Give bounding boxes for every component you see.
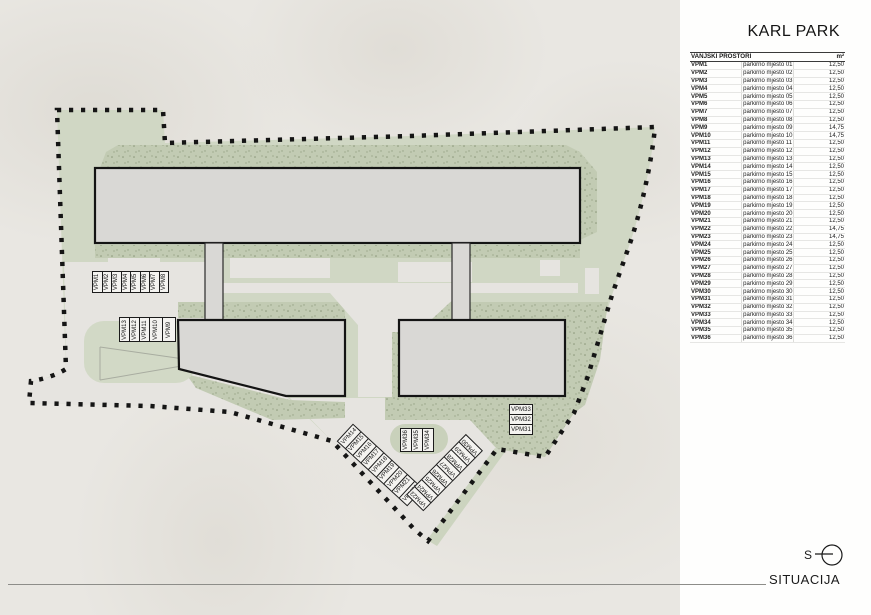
- parking-description: parkirno mjesto 13: [742, 155, 794, 163]
- parking-code: VPM20: [690, 210, 742, 218]
- parking-description: parkirno mjesto 27: [742, 264, 794, 272]
- parking-description: parkirno mjesto 01: [742, 62, 794, 70]
- parking-description: parkirno mjesto 26: [742, 256, 794, 264]
- green-band-mid: [178, 302, 345, 318]
- courtyard-path-horizontal: [97, 283, 578, 293]
- terrace-2: [230, 258, 330, 278]
- north-symbol-icon: S: [802, 542, 850, 570]
- site-plan: VPM1VPM2VPM3VPM4VPM5VPM6VPM7VPM8 VPM13VP…: [0, 0, 680, 615]
- parking-code: VPM24: [690, 241, 742, 249]
- parking-code: VPM18: [690, 194, 742, 202]
- parking-stall-label: VPM34: [422, 428, 434, 452]
- table-row: VPM36 parkirno mjesto 36 12,50: [690, 334, 845, 342]
- terrace-5: [585, 268, 599, 294]
- table-row: VPM19 parkirno mjesto 19 12,50: [690, 202, 845, 210]
- parking-code: VPM9: [690, 124, 742, 132]
- parking-description: parkirno mjesto 07: [742, 108, 794, 116]
- parking-description: parkirno mjesto 20: [742, 210, 794, 218]
- parking-code: VPM12: [690, 147, 742, 155]
- parking-row-vpm9-13: VPM13VPM12VPM11VPM10VPM9: [119, 317, 176, 342]
- parking-description: parkirno mjesto 34: [742, 319, 794, 327]
- building-connector-east: [452, 243, 470, 321]
- parking-description: parkirno mjesto 32: [742, 303, 794, 311]
- parking-description: parkirno mjesto 22 - invalidsko: [742, 225, 794, 233]
- parking-description: parkirno mjesto 28: [742, 272, 794, 280]
- parking-description: parkirno mjesto 16: [742, 178, 794, 186]
- parking-stall-label: VPM9: [162, 317, 176, 342]
- table-row: VPM9 parkirno mjesto 09 - invalidsko 14,…: [690, 124, 845, 132]
- parking-description: parkirno mjesto 10 - invalidsko: [742, 132, 794, 140]
- project-title: KARL PARK: [680, 24, 840, 40]
- parking-code: VPM1: [690, 62, 742, 70]
- parking-area: 12,50: [793, 303, 845, 311]
- table-row: VPM22 parkirno mjesto 22 - invalidsko 14…: [690, 225, 845, 233]
- caption-rule: [8, 584, 766, 585]
- parking-description: parkirno mjesto 33: [742, 311, 794, 319]
- parking-code: VPM4: [690, 85, 742, 93]
- parking-code: VPM11: [690, 139, 742, 147]
- table-row: VPM21 parkirno mjesto 21 12,50: [690, 217, 845, 225]
- table-row: VPM18 parkirno mjesto 18 12,50: [690, 194, 845, 202]
- parking-code: VPM31: [690, 295, 742, 303]
- table-row: VPM24 parkirno mjesto 24 12,50: [690, 241, 845, 249]
- table-header-row: VANJSKI PROSTORI m²: [690, 53, 845, 62]
- parking-area: 12,50: [793, 264, 845, 272]
- parking-description: parkirno mjesto 29: [742, 280, 794, 288]
- parking-area: 12,50: [793, 272, 845, 280]
- table-row: VPM1 parkirno mjesto 01 12,50: [690, 62, 845, 70]
- table-row: VPM15 parkirno mjesto 15 12,50: [690, 171, 845, 179]
- parking-stall-label: VPM10: [149, 317, 163, 342]
- parking-area: 12,50: [793, 202, 845, 210]
- table-row: VPM3 parkirno mjesto 03 12,50: [690, 77, 845, 85]
- table-row: VPM14 parkirno mjesto 14 12,50: [690, 163, 845, 171]
- parking-description: parkirno mjesto 19: [742, 202, 794, 210]
- parking-stall-label: VPM8: [159, 271, 170, 293]
- parking-code: VPM26: [690, 256, 742, 264]
- table-header-name: VANJSKI PROSTORI: [690, 53, 793, 62]
- parking-description: parkirno mjesto 17: [742, 186, 794, 194]
- parking-description: parkirno mjesto 24: [742, 241, 794, 249]
- parking-area: 14,75: [793, 233, 845, 241]
- parking-description: parkirno mjesto 21: [742, 217, 794, 225]
- parking-code: VPM36: [690, 334, 742, 342]
- parking-code: VPM7: [690, 108, 742, 116]
- table-row: VPM13 parkirno mjesto 13 12,50: [690, 155, 845, 163]
- parking-area: 14,75: [793, 124, 845, 132]
- parking-area: 12,50: [793, 334, 845, 342]
- north-marker: S: [802, 542, 850, 570]
- parking-description: parkirno mjesto 02: [742, 69, 794, 77]
- parking-description: parkirno mjesto 36: [742, 334, 794, 342]
- parking-row-vpm1-8: VPM1VPM2VPM3VPM4VPM5VPM6VPM7VPM8: [92, 271, 169, 293]
- parking-code: VPM5: [690, 93, 742, 101]
- parking-code: VPM6: [690, 100, 742, 108]
- parking-code: VPM14: [690, 163, 742, 171]
- parking-area: 12,50: [793, 108, 845, 116]
- table-row: VPM23 parkirno mjesto 23 - invalidsko 14…: [690, 233, 845, 241]
- parking-code: VPM30: [690, 288, 742, 296]
- caption-text: SITUACIJA: [766, 573, 840, 586]
- parking-description: parkirno mjesto 04: [742, 85, 794, 93]
- parking-description: parkirno mjesto 12: [742, 147, 794, 155]
- terrace-4: [540, 260, 560, 276]
- table-row: VPM20 parkirno mjesto 20 12,50: [690, 210, 845, 218]
- parking-code: VPM33: [690, 311, 742, 319]
- situation-sheet: VPM1VPM2VPM3VPM4VPM5VPM6VPM7VPM8 VPM13VP…: [0, 0, 871, 615]
- parking-area: 12,50: [793, 178, 845, 186]
- parking-code: VPM17: [690, 186, 742, 194]
- table-row: VPM28 parkirno mjesto 28 12,50: [690, 272, 845, 280]
- table-header-area: m²: [793, 53, 845, 62]
- parking-area: 12,50: [793, 319, 845, 327]
- parking-description: parkirno mjesto 03: [742, 77, 794, 85]
- parking-area: 12,50: [793, 100, 845, 108]
- parking-code: VPM3: [690, 77, 742, 85]
- parking-area: 12,50: [793, 85, 845, 93]
- table-row: VPM35 parkirno mjesto 35 12,50: [690, 327, 845, 335]
- parking-area: 12,50: [793, 163, 845, 171]
- sheet-caption: SITUACIJA: [8, 570, 840, 586]
- green-band-north: [100, 145, 580, 168]
- parking-code: VPM21: [690, 217, 742, 225]
- parking-description: parkirno mjesto 05: [742, 93, 794, 101]
- parking-stack-vpm31-33: VPM33VPM32VPM31: [509, 404, 533, 435]
- table-row: VPM8 parkirno mjesto 08 12,50: [690, 116, 845, 124]
- parking-area: 12,50: [793, 186, 845, 194]
- parking-description: parkirno mjesto 06: [742, 100, 794, 108]
- parking-code: VPM15: [690, 171, 742, 179]
- parking-description: parkirno mjesto 18: [742, 194, 794, 202]
- table-row: VPM12 parkirno mjesto 12 12,50: [690, 147, 845, 155]
- parking-code: VPM35: [690, 327, 742, 335]
- parking-area: 12,50: [793, 194, 845, 202]
- parking-description: parkirno mjesto 25: [742, 249, 794, 257]
- table-row: VPM6 parkirno mjesto 06 12,50: [690, 100, 845, 108]
- parking-area: 12,50: [793, 93, 845, 101]
- parking-area: 12,50: [793, 311, 845, 319]
- parking-description: parkirno mjesto 23 - invalidsko: [742, 233, 794, 241]
- parking-code: VPM25: [690, 249, 742, 257]
- parking-row-vpm34-36: VPM36VPM35VPM34: [400, 428, 434, 452]
- parking-code: VPM13: [690, 155, 742, 163]
- table-row: VPM4 parkirno mjesto 04 12,50: [690, 85, 845, 93]
- table-row: VPM7 parkirno mjesto 07 12,50: [690, 108, 845, 116]
- parking-description: parkirno mjesto 30: [742, 288, 794, 296]
- parking-area: 12,50: [793, 295, 845, 303]
- parking-area: 12,50: [793, 77, 845, 85]
- building-south-east: [399, 320, 565, 396]
- parking-code: VPM32: [690, 303, 742, 311]
- table-row: VPM5 parkirno mjesto 05 12,50: [690, 93, 845, 101]
- parking-code: VPM19: [690, 202, 742, 210]
- table-row: VPM10 parkirno mjesto 10 - invalidsko 14…: [690, 132, 845, 140]
- table-row: VPM25 parkirno mjesto 25 12,50: [690, 249, 845, 257]
- parking-description: parkirno mjesto 08: [742, 116, 794, 124]
- table-row: VPM2 parkirno mjesto 02 12,50: [690, 69, 845, 77]
- parking-area: 12,50: [793, 241, 845, 249]
- parking-area: 12,50: [793, 171, 845, 179]
- table-row: VPM32 parkirno mjesto 32 12,50: [690, 303, 845, 311]
- table-row: VPM11 parkirno mjesto 11 12,50: [690, 139, 845, 147]
- parking-description: parkirno mjesto 31: [742, 295, 794, 303]
- parking-area: 12,50: [793, 210, 845, 218]
- outdoor-spaces-table: VANJSKI PROSTORI m² VPM1 parkirno mjesto…: [690, 52, 845, 343]
- table-row: VPM33 parkirno mjesto 33 12,50: [690, 311, 845, 319]
- table-row: VPM29 parkirno mjesto 29 12,50: [690, 280, 845, 288]
- parking-code: VPM23: [690, 233, 742, 241]
- parking-area: 14,75: [793, 132, 845, 140]
- parking-code: VPM10: [690, 132, 742, 140]
- parking-area: 12,50: [793, 147, 845, 155]
- parking-description: parkirno mjesto 15: [742, 171, 794, 179]
- site-plan-drawing: [0, 0, 680, 615]
- parking-area: 12,50: [793, 249, 845, 257]
- parking-area: 14,75: [793, 225, 845, 233]
- parking-description: parkirno mjesto 35: [742, 327, 794, 335]
- parking-code: VPM29: [690, 280, 742, 288]
- parking-area: 12,50: [793, 139, 845, 147]
- parking-code: VPM16: [690, 178, 742, 186]
- parking-area: 12,50: [793, 280, 845, 288]
- parking-area: 12,50: [793, 62, 845, 70]
- parking-code: VPM22: [690, 225, 742, 233]
- parking-description: parkirno mjesto 14: [742, 163, 794, 171]
- parking-description: parkirno mjesto 09 - invalidsko: [742, 124, 794, 132]
- parking-area: 12,50: [793, 116, 845, 124]
- title-block-panel: KARL PARK VANJSKI PROSTORI m² VPM1 parki…: [680, 0, 871, 615]
- parking-area: 12,50: [793, 256, 845, 264]
- parking-area: 12,50: [793, 288, 845, 296]
- table-row: VPM16 parkirno mjesto 16 12,50: [690, 178, 845, 186]
- building-connector-west: [205, 243, 223, 321]
- parking-code: VPM28: [690, 272, 742, 280]
- table-row: VPM31 parkirno mjesto 31 12,50: [690, 295, 845, 303]
- green-band-below-main: [95, 245, 580, 258]
- table-row: VPM34 parkirno mjesto 34 12,50: [690, 319, 845, 327]
- parking-area: 12,50: [793, 69, 845, 77]
- parking-area: 12,50: [793, 217, 845, 225]
- parking-code: VPM34: [690, 319, 742, 327]
- north-letter: S: [804, 548, 812, 562]
- parking-code: VPM2: [690, 69, 742, 77]
- parking-code: VPM27: [690, 264, 742, 272]
- table-row: VPM26 parkirno mjesto 26 12,50: [690, 256, 845, 264]
- table-row: VPM30 parkirno mjesto 30 12,50: [690, 288, 845, 296]
- parking-description: parkirno mjesto 11: [742, 139, 794, 147]
- parking-code: VPM8: [690, 116, 742, 124]
- parking-area: 12,50: [793, 327, 845, 335]
- table-row: VPM17 parkirno mjesto 17 12,50: [690, 186, 845, 194]
- building-main: [95, 168, 580, 243]
- table-row: VPM27 parkirno mjesto 27 12,50: [690, 264, 845, 272]
- parking-area: 12,50: [793, 155, 845, 163]
- parking-stall-label: VPM31: [509, 424, 533, 435]
